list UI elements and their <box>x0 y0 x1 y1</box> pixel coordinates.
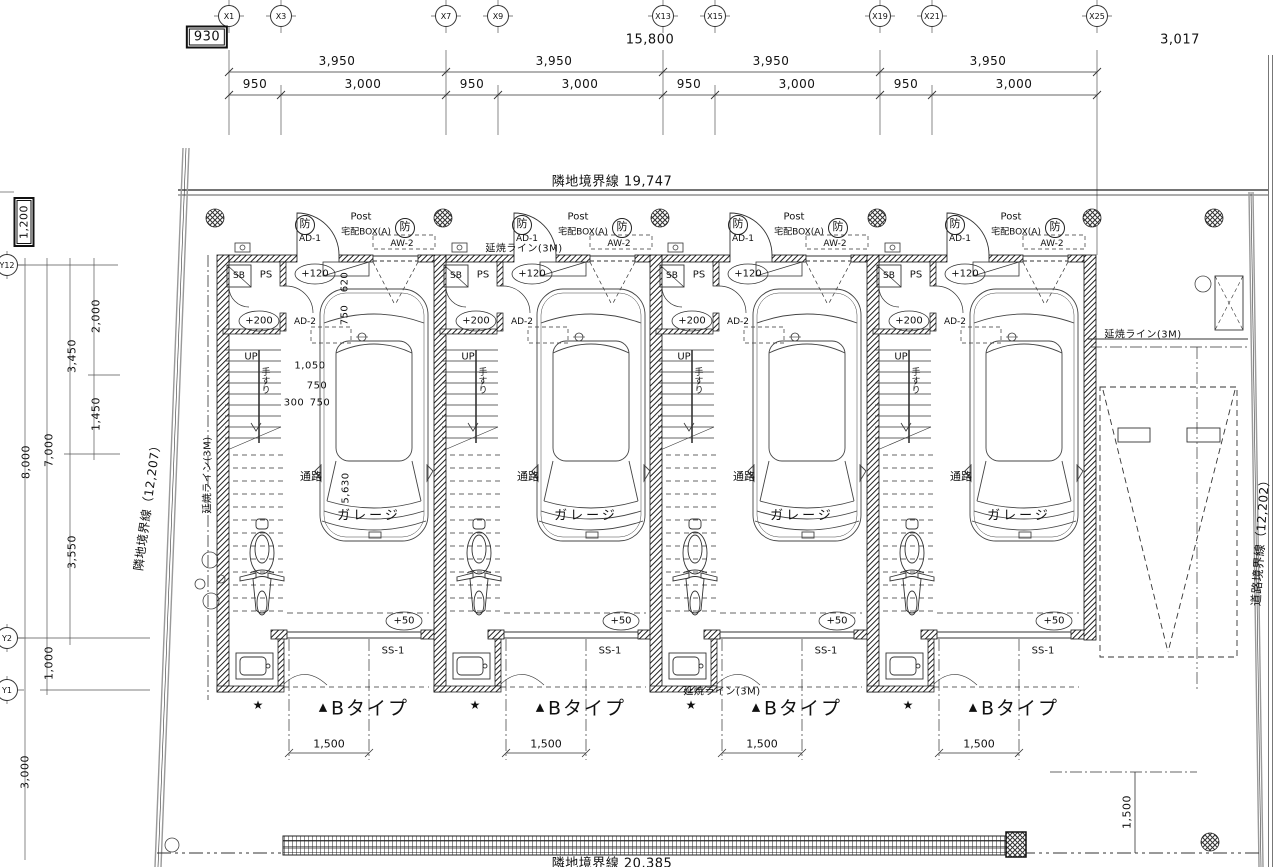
site-boundaries <box>155 55 1273 867</box>
dim-8000: 8,000 <box>20 445 33 479</box>
dim-right-3017: 3,017 <box>1160 33 1200 48</box>
offset-930-box: 930 <box>189 29 225 46</box>
offset-1200-box: 1,200 <box>17 200 32 244</box>
axis-x3: X3 <box>270 5 292 27</box>
dim-sub: 950 <box>677 77 701 91</box>
planting-circles <box>165 209 1223 852</box>
dim-2000: 2,000 <box>90 299 103 333</box>
dim-7000: 7,000 <box>43 433 56 467</box>
fire-line-label-left: 延焼ライン(3M) <box>199 436 214 513</box>
dim-5630: 5,630 <box>341 472 352 503</box>
boundary-label-top: 隣地境界線 19,747 <box>552 171 673 190</box>
dim-sub: 950 <box>460 77 484 91</box>
fire-line-label-right: 延焼ライン(3M) <box>1104 326 1181 341</box>
dim-3550: 3,550 <box>66 535 79 569</box>
dim-sub: 3,000 <box>345 77 382 91</box>
dim-1050: 1,050 <box>294 361 325 372</box>
dim-sub: 950 <box>243 77 267 91</box>
dim-right-1500: 1,500 <box>1121 795 1134 829</box>
dim-750: 750 <box>340 305 351 326</box>
axis-x9: X9 <box>487 5 509 27</box>
dim-sub: 3,000 <box>779 77 816 91</box>
dim-sub: 3,000 <box>562 77 599 91</box>
dim-1450: 1,450 <box>90 397 103 431</box>
dim-750b: 750 <box>307 381 328 392</box>
floor-plan-page: X1 X3 X7 X9 X13 X15 X19 X21 X25 Y12 Y2 Y… <box>0 0 1275 867</box>
axis-x21: X21 <box>921 5 943 27</box>
dim-3000: 3,000 <box>19 755 32 789</box>
dim-bay: 3,950 <box>970 54 1007 68</box>
axis-x13: X13 <box>652 5 674 27</box>
axis-x25: X25 <box>1086 5 1108 27</box>
axis-x19: X19 <box>869 5 891 27</box>
axis-x7: X7 <box>435 5 457 27</box>
axis-x15: X15 <box>704 5 726 27</box>
dim-620: 620 <box>340 272 351 293</box>
dim-bay: 3,950 <box>319 54 356 68</box>
plan-linework <box>0 0 1275 867</box>
fire-line-label-bottom: 延焼ライン(3M) <box>683 683 760 698</box>
dim-750c: 750 <box>310 398 331 409</box>
dim-sub: 3,000 <box>996 77 1033 91</box>
dim-bay: 3,950 <box>753 54 790 68</box>
fire-line-label-top: 延焼ライン(3M) <box>485 240 562 255</box>
dim-300: 300 <box>284 398 305 409</box>
boundary-label-bottom: 隣地境界線 20,385 <box>552 853 673 867</box>
axis-x1: X1 <box>218 5 240 27</box>
dim-1000: 1,000 <box>43 646 56 680</box>
dim-sub: 950 <box>894 77 918 91</box>
dim-bay: 3,950 <box>536 54 573 68</box>
dim-total-15800: 15,800 <box>626 33 675 48</box>
dim-3450: 3,450 <box>66 339 79 373</box>
right-end-wall <box>1084 255 1096 640</box>
